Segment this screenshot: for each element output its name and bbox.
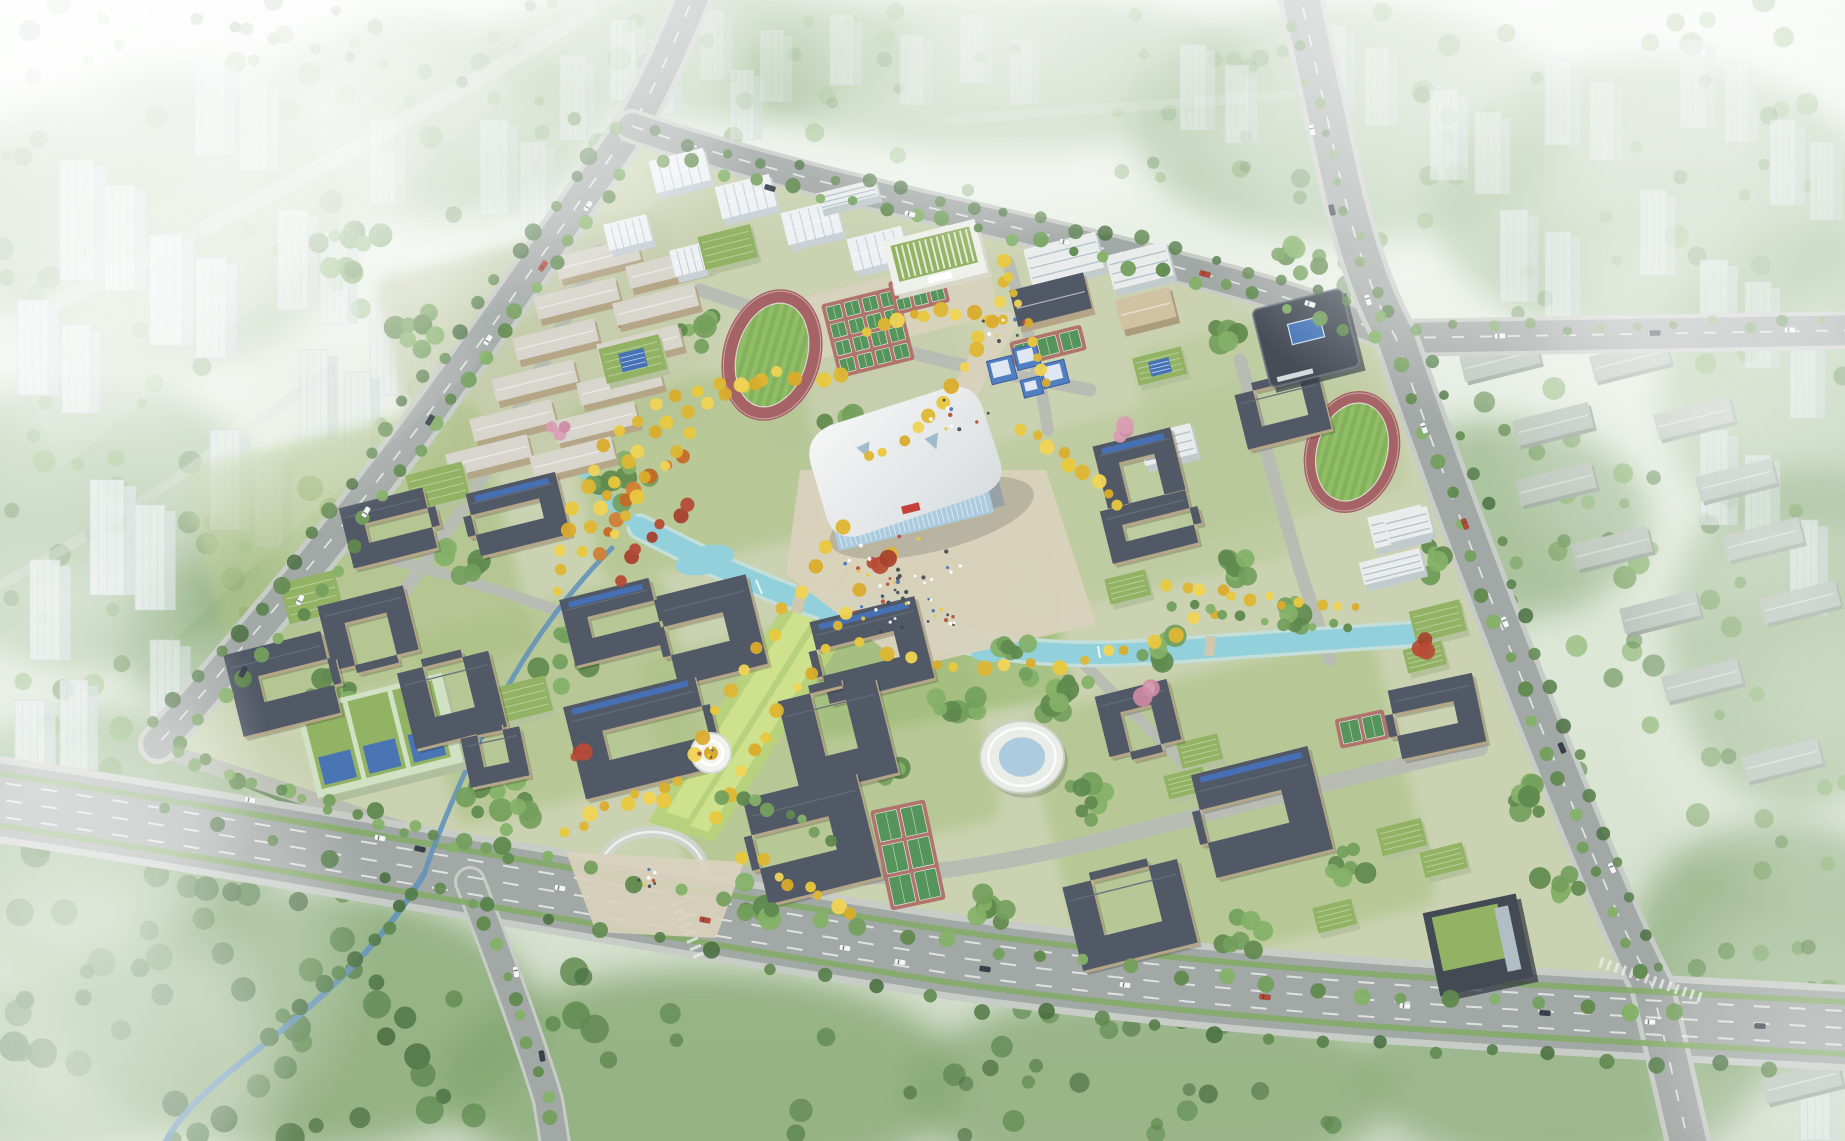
- scene-canvas: [0, 0, 1845, 1141]
- haze-and-light: [0, 0, 1845, 1141]
- campus-aerial-rendering: [0, 0, 1845, 1141]
